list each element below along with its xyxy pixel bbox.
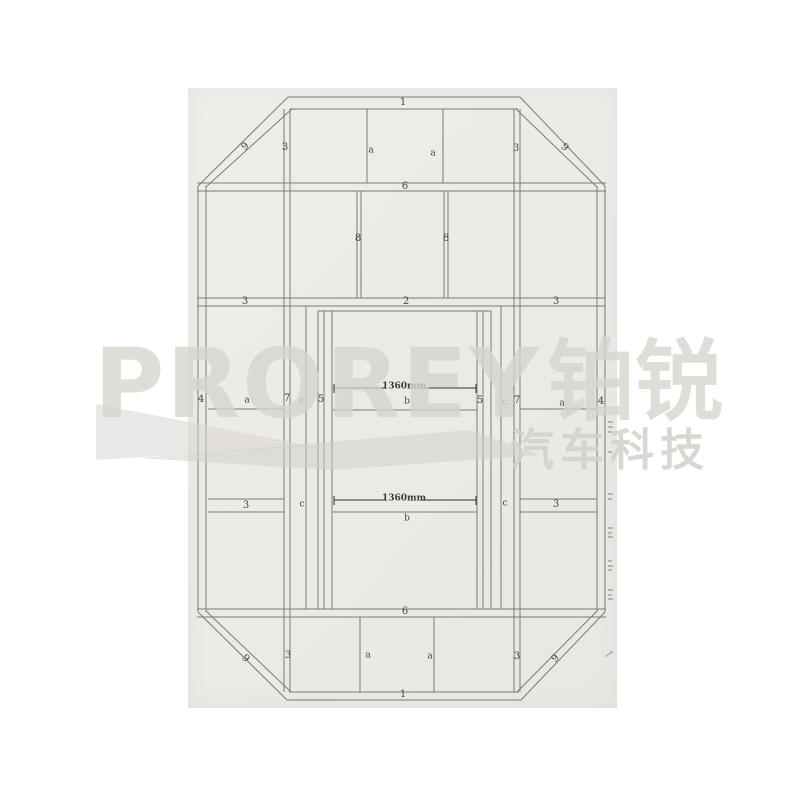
pencil-arrow-mark: ↗ <box>603 647 615 660</box>
panel-label-b-lower: b <box>404 515 410 524</box>
part-label-c-right-lower: c <box>502 500 507 509</box>
part-label-strut-8-right: 8 <box>443 234 449 244</box>
part-label-post-bl: 3 <box>285 651 291 661</box>
part-label-brace-3-left: 3 <box>243 501 249 511</box>
part-label-strut-8-left: 8 <box>355 234 361 244</box>
panel-label-b-upper: b <box>404 398 410 407</box>
part-label-rail-right: 4 <box>598 397 604 407</box>
panel-label-mid-a-left: a <box>244 397 249 406</box>
part-label-bar2-center: 2 <box>403 297 409 307</box>
part-label-corner-bl: 9 <box>239 653 251 665</box>
part-label-wall-5-left: 5 <box>318 395 324 405</box>
part-label-wall-5-right: 5 <box>477 396 483 406</box>
panel-label-top-a1: a <box>368 147 373 156</box>
part-label-lower-crossbar: 6 <box>402 607 408 617</box>
part-label-corner-br: 9 <box>550 653 562 665</box>
part-label-corner-tl: 9 <box>240 141 252 153</box>
part-label-c-left-lower: c <box>299 501 304 510</box>
dimension-label-lower: 1360mm <box>382 495 426 504</box>
part-label-bottom-bar: 1 <box>400 690 406 700</box>
part-label-top-bar: 1 <box>400 98 406 108</box>
scanned-drawing-paper: 1 9 3 a a 3 9 6 8 8 3 2 3 4 a 7 c 5 1360… <box>188 88 617 708</box>
panel-label-bottom-a2: a <box>427 653 432 662</box>
part-label-c-right-upper: c <box>502 399 507 408</box>
panel-label-mid-a-right: a <box>559 400 564 409</box>
part-label-bar2-left: 3 <box>242 297 248 307</box>
panel-label-top-a2: a <box>430 150 435 159</box>
part-label-post-tl: 3 <box>282 143 288 153</box>
part-labels-layer: 1 9 3 a a 3 9 6 8 8 3 2 3 4 a 7 c 5 1360… <box>188 88 617 708</box>
dimension-label-upper: 1360mm <box>382 383 426 392</box>
part-label-post-7-right: 7 <box>514 396 520 406</box>
panel-label-bottom-a1: a <box>365 652 370 661</box>
part-label-post-tr: 3 <box>513 144 519 154</box>
part-label-upper-crossbar: 6 <box>402 182 408 192</box>
part-label-bar2-right: 3 <box>553 297 559 307</box>
part-label-post-br: 3 <box>514 652 520 662</box>
part-label-c-left-upper: c <box>299 398 304 407</box>
part-label-rail-left: 4 <box>198 395 204 405</box>
part-label-post-7-left: 7 <box>284 394 290 404</box>
part-label-corner-tr: 9 <box>558 142 570 154</box>
part-label-brace-3-right: 3 <box>553 500 559 510</box>
